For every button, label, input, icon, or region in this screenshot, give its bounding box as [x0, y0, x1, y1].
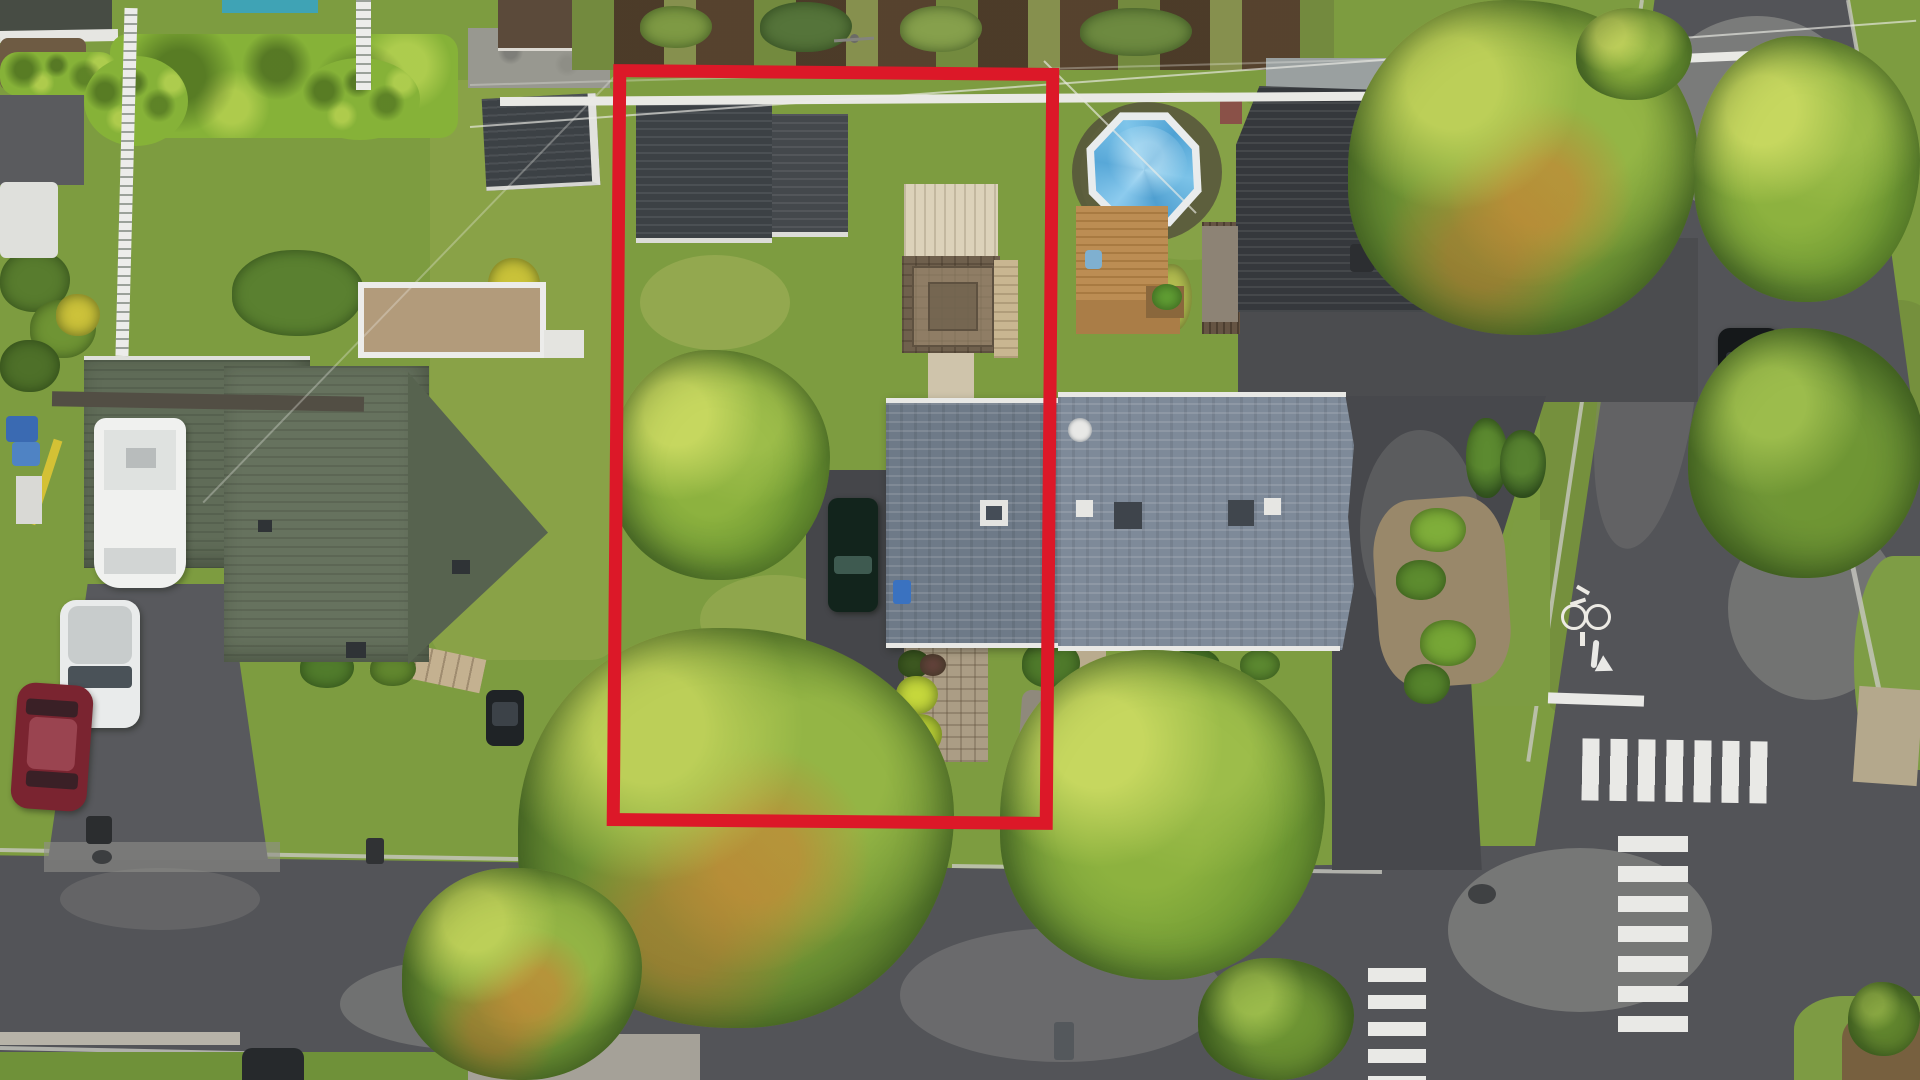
gutter: [1058, 392, 1346, 397]
bed-shrub: [1404, 664, 1450, 704]
manhole: [1468, 884, 1496, 904]
bike-symbol-wheel: [1561, 604, 1587, 630]
deck-stair: [544, 330, 584, 358]
property-boundary-outline: [607, 64, 1060, 830]
garden-bush: [640, 6, 712, 48]
corner-roof: [0, 0, 112, 32]
brick-chimney: [1220, 98, 1242, 124]
garden-bush: [1080, 8, 1192, 56]
garden-bush: [760, 2, 852, 52]
bottom-edge-car: [242, 1048, 304, 1080]
maroon-car-roof: [26, 716, 78, 771]
garden-bush: [232, 250, 364, 336]
left-street-patch: [0, 95, 84, 185]
brown-shed-roof: [498, 0, 578, 51]
trash-bin: [366, 838, 384, 864]
hedge-bush: [84, 56, 188, 146]
garden-bush: [0, 340, 60, 392]
bush-corner-br: [1848, 982, 1920, 1056]
roof-hatch: [1264, 498, 1281, 515]
neighbor-pool-edge: [222, 0, 318, 13]
roof-vent: [452, 560, 470, 574]
street-car-roof: [492, 702, 518, 726]
bed-shrub: [1420, 620, 1476, 666]
sidewalk-strip: [0, 1032, 240, 1045]
pool-cover-sheen: [1100, 126, 1188, 214]
blue-bin: [12, 442, 40, 466]
white-suv-roof: [68, 606, 132, 664]
tree-bottom-left: [402, 868, 642, 1080]
crosswalk-right: [1618, 836, 1688, 1041]
bike-symbol-rider: [1580, 632, 1585, 646]
neighbor-house-roof: [1058, 394, 1354, 650]
white-fence-segment: [356, 0, 371, 90]
gravel-path: [1853, 686, 1920, 786]
worn-asphalt: [60, 868, 260, 930]
gutter: [1058, 646, 1340, 651]
roof-vent: [258, 520, 272, 532]
driveway-apron: [44, 842, 280, 872]
chimney: [1114, 502, 1142, 529]
tree-bottom-small: [1198, 958, 1354, 1080]
rv-front-band: [104, 548, 176, 574]
aerial-photo-scene: [0, 0, 1920, 1080]
chimney: [1228, 500, 1254, 526]
pool-chair: [1085, 250, 1102, 269]
garden-bush: [900, 6, 982, 52]
bush-top-center: [1576, 8, 1692, 100]
bike-symbol-wheel: [1585, 604, 1611, 630]
yellow-flower-bush: [56, 294, 100, 336]
gray-bin: [1054, 1022, 1074, 1060]
bed-shrub: [1410, 508, 1466, 552]
stone-wall: [1202, 226, 1238, 322]
satellite-dish: [1068, 418, 1092, 442]
trash-bin: [86, 816, 112, 844]
roof-hatch: [1076, 500, 1093, 517]
roof-vent: [346, 642, 366, 658]
utility-box: [16, 476, 42, 524]
bed-shrub: [1396, 560, 1446, 600]
evergreen-cone: [1500, 430, 1546, 498]
crosswalk-main: [1581, 738, 1774, 803]
balcony-deck: [358, 282, 546, 358]
manhole: [92, 850, 112, 864]
crosswalk-lower: [1368, 968, 1426, 1080]
blue-bin: [6, 416, 38, 442]
white-trailer: [0, 182, 58, 258]
tree-right-corner: [1694, 36, 1920, 302]
tree-right-mid: [1688, 328, 1920, 578]
planter-plant: [1152, 284, 1182, 310]
rv-roof-vent: [126, 448, 156, 468]
